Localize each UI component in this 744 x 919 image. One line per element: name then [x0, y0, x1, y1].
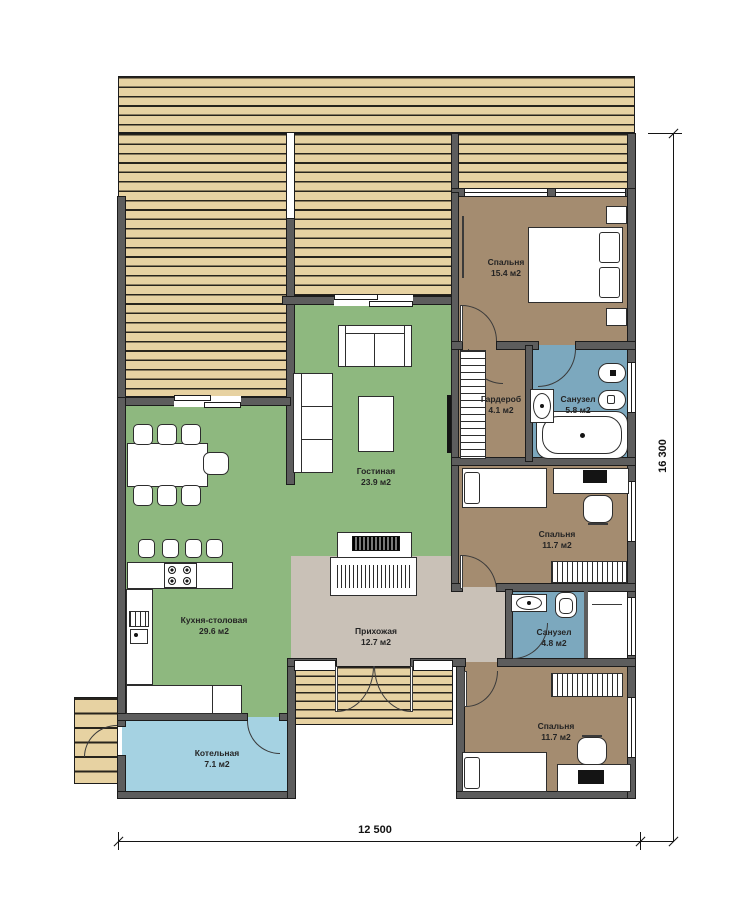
burner	[168, 577, 176, 585]
room-area: 12.7 м2	[361, 637, 391, 647]
fireplace-firebox	[352, 536, 400, 551]
room-name: Гостиная	[357, 466, 395, 476]
pillow	[599, 267, 620, 298]
wall-notch-west	[287, 662, 296, 799]
pillow	[464, 472, 480, 504]
bar-stool	[138, 539, 155, 558]
wall-kitchen-boiler-a	[117, 713, 248, 721]
dimension-height-label: 16 300	[657, 426, 669, 486]
post-right	[627, 133, 636, 192]
closet-bedroom3	[551, 673, 623, 697]
room-label-boiler: Котельная 7.1 м2	[167, 748, 267, 770]
wall-vertical-main	[451, 192, 459, 591]
closet-bedroom2	[551, 561, 627, 583]
room-label-bedroom-3: Спальня 11.7 м2	[506, 721, 606, 743]
wall-south-boiler	[117, 791, 296, 799]
dining-armchair	[203, 452, 229, 475]
kitchen-sink	[130, 629, 148, 644]
floor-plan-canvas: Спальня 15.4 м2 Гардероб 4.1 м2 Санузел …	[0, 0, 744, 919]
wall-341-a	[451, 341, 463, 350]
desk-chair	[583, 495, 613, 523]
post-left	[117, 196, 126, 401]
room-area: 29.6 м2	[199, 626, 229, 636]
room-label-living-room: Гостиная 23.9 м2	[326, 466, 426, 488]
room-label-hallway: Прихожая 12.7 м2	[326, 626, 426, 648]
post-bedroom1-upper	[451, 133, 459, 192]
monitor-bedroom3	[578, 770, 604, 784]
dining-chair	[133, 424, 153, 445]
sliding-door-living-a	[334, 294, 378, 300]
room-area: 15.4 м2	[491, 268, 521, 278]
deck-top-strip	[118, 76, 635, 133]
room-label-bedroom-2: Спальня 11.7 м2	[507, 529, 607, 551]
appliance-box	[212, 685, 242, 714]
burner	[183, 566, 191, 574]
dining-chair	[157, 424, 177, 445]
room-area: 23.9 м2	[361, 477, 391, 487]
room-area: 5.8 м2	[565, 405, 590, 415]
sofa-top-arm-left	[338, 325, 346, 367]
room-label-kitchen: Кухня-столовая 29.6 м2	[179, 615, 249, 637]
room-area: 7.1 м2	[204, 759, 229, 769]
dining-chair	[157, 485, 177, 506]
dimension-line-right	[673, 133, 674, 842]
burner	[168, 566, 176, 574]
room-name: Прихожая	[355, 626, 397, 636]
dining-chair	[133, 485, 153, 506]
deck-middle	[294, 133, 452, 296]
room-area: 4.8 м2	[541, 638, 566, 648]
room-name: Санузел	[537, 627, 572, 637]
room-label-bedroom-1: Спальня 15.4 м2	[456, 257, 556, 279]
room-name: Кухня-столовая	[181, 615, 248, 625]
dish-rack	[129, 611, 149, 627]
sofa-top-cushion-line	[374, 334, 375, 366]
sofa-top-arm-right	[404, 325, 412, 367]
bathtub-drain	[580, 433, 585, 438]
room-area: 11.7 м2	[541, 732, 570, 742]
sink-bathroom2-drain	[527, 601, 531, 605]
bar-stool	[162, 539, 179, 558]
wall-341-c	[575, 341, 636, 350]
sofa-left-cushion1	[302, 406, 333, 407]
window-bedroom1-a	[464, 188, 548, 197]
sofa-left-cushion2	[302, 439, 333, 440]
bar-stool	[185, 539, 202, 558]
deck-right	[458, 133, 628, 189]
room-name: Гардероб	[481, 394, 521, 404]
monitor	[583, 470, 607, 483]
nightstand	[606, 206, 627, 224]
window-bedroom3	[627, 697, 636, 758]
sliding-door-kitchen-a	[174, 395, 211, 401]
burner	[183, 577, 191, 585]
room-name: Спальня	[488, 257, 525, 267]
sofa-top-back	[338, 325, 412, 334]
toilet-bathroom2-seat	[559, 598, 573, 614]
dimension-width-label: 12 500	[325, 824, 425, 836]
dimension-line-bottom	[118, 841, 674, 842]
dining-table	[127, 443, 208, 487]
pillow	[599, 232, 620, 263]
deck-left	[118, 133, 287, 397]
shower-line	[592, 604, 622, 605]
wall-658-c	[497, 658, 636, 667]
desk-chair-base	[588, 523, 608, 525]
kitchen-sink-faucet	[134, 633, 138, 637]
room-name: Спальня	[538, 721, 575, 731]
wall-west-upper	[117, 397, 126, 727]
sliding-door-living-b	[369, 301, 413, 307]
entrance-sidelight-a	[294, 660, 336, 671]
room-label-bathroom-1: Санузел 5.8 м2	[528, 394, 628, 416]
toilet-dot	[610, 370, 616, 376]
window-shower	[627, 597, 636, 656]
sofa-left-back	[293, 373, 302, 473]
window-bedroom1-b	[555, 188, 626, 197]
entrance-sidelight-b	[413, 660, 453, 671]
partition-shower	[584, 589, 588, 662]
pillow	[464, 757, 480, 789]
room-area: 4.1 м2	[488, 405, 513, 415]
coffee-table	[358, 396, 394, 452]
room-name: Котельная	[195, 748, 240, 758]
dining-chair	[181, 485, 201, 506]
coat-rack-hangers	[337, 565, 410, 588]
nightstand	[606, 308, 627, 326]
room-name: Санузел	[561, 394, 596, 404]
window-bathroom1	[627, 362, 636, 413]
sliding-door-kitchen-b	[204, 402, 241, 408]
wall-south-bedroom3	[456, 791, 636, 799]
bar-stool	[206, 539, 223, 558]
wall-583-b	[496, 583, 636, 592]
dimension-stub-right-top	[648, 133, 682, 134]
dining-chair	[181, 424, 201, 445]
room-name: Спальня	[539, 529, 576, 539]
room-area: 11.7 м2	[542, 540, 571, 550]
room-label-bathroom-2: Санузел 4.8 м2	[504, 627, 604, 649]
